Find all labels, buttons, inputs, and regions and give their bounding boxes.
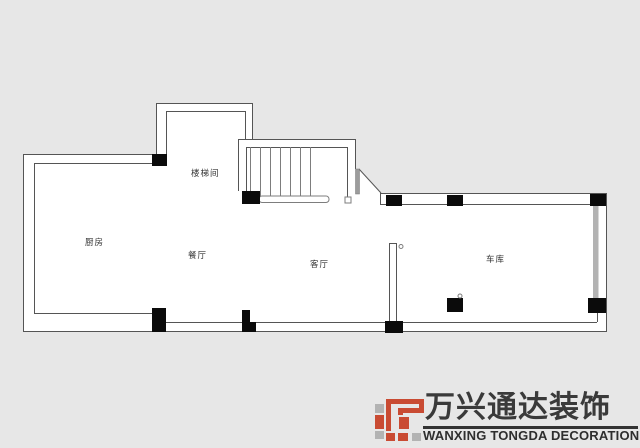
floor-plan (0, 0, 640, 448)
room-label-garage: 车库 (486, 253, 505, 265)
brand-name-english: WANXING TONGDA DECORATION (423, 429, 638, 443)
brand-logo-icon (372, 396, 424, 443)
door-leaf (356, 169, 360, 194)
garage-door (593, 206, 599, 298)
brand-name-chinese: 万兴通达装饰 (425, 393, 638, 423)
room-label-living: 客厅 (310, 258, 329, 270)
screenshot-stage: 厨房 餐厅 客厅 车库 楼梯间 万兴通达装饰 WANXING TONGDA DE… (0, 0, 640, 448)
room-label-kitchen: 厨房 (85, 236, 104, 248)
stair-rail (259, 196, 329, 203)
door-jamb (345, 197, 351, 203)
brand-logo: 万兴通达装饰 WANXING TONGDA DECORATION (370, 389, 638, 445)
room-label-stairwell: 楼梯间 (191, 167, 220, 179)
room-label-dining: 餐厅 (188, 249, 207, 261)
plan-footprint (23, 103, 607, 332)
